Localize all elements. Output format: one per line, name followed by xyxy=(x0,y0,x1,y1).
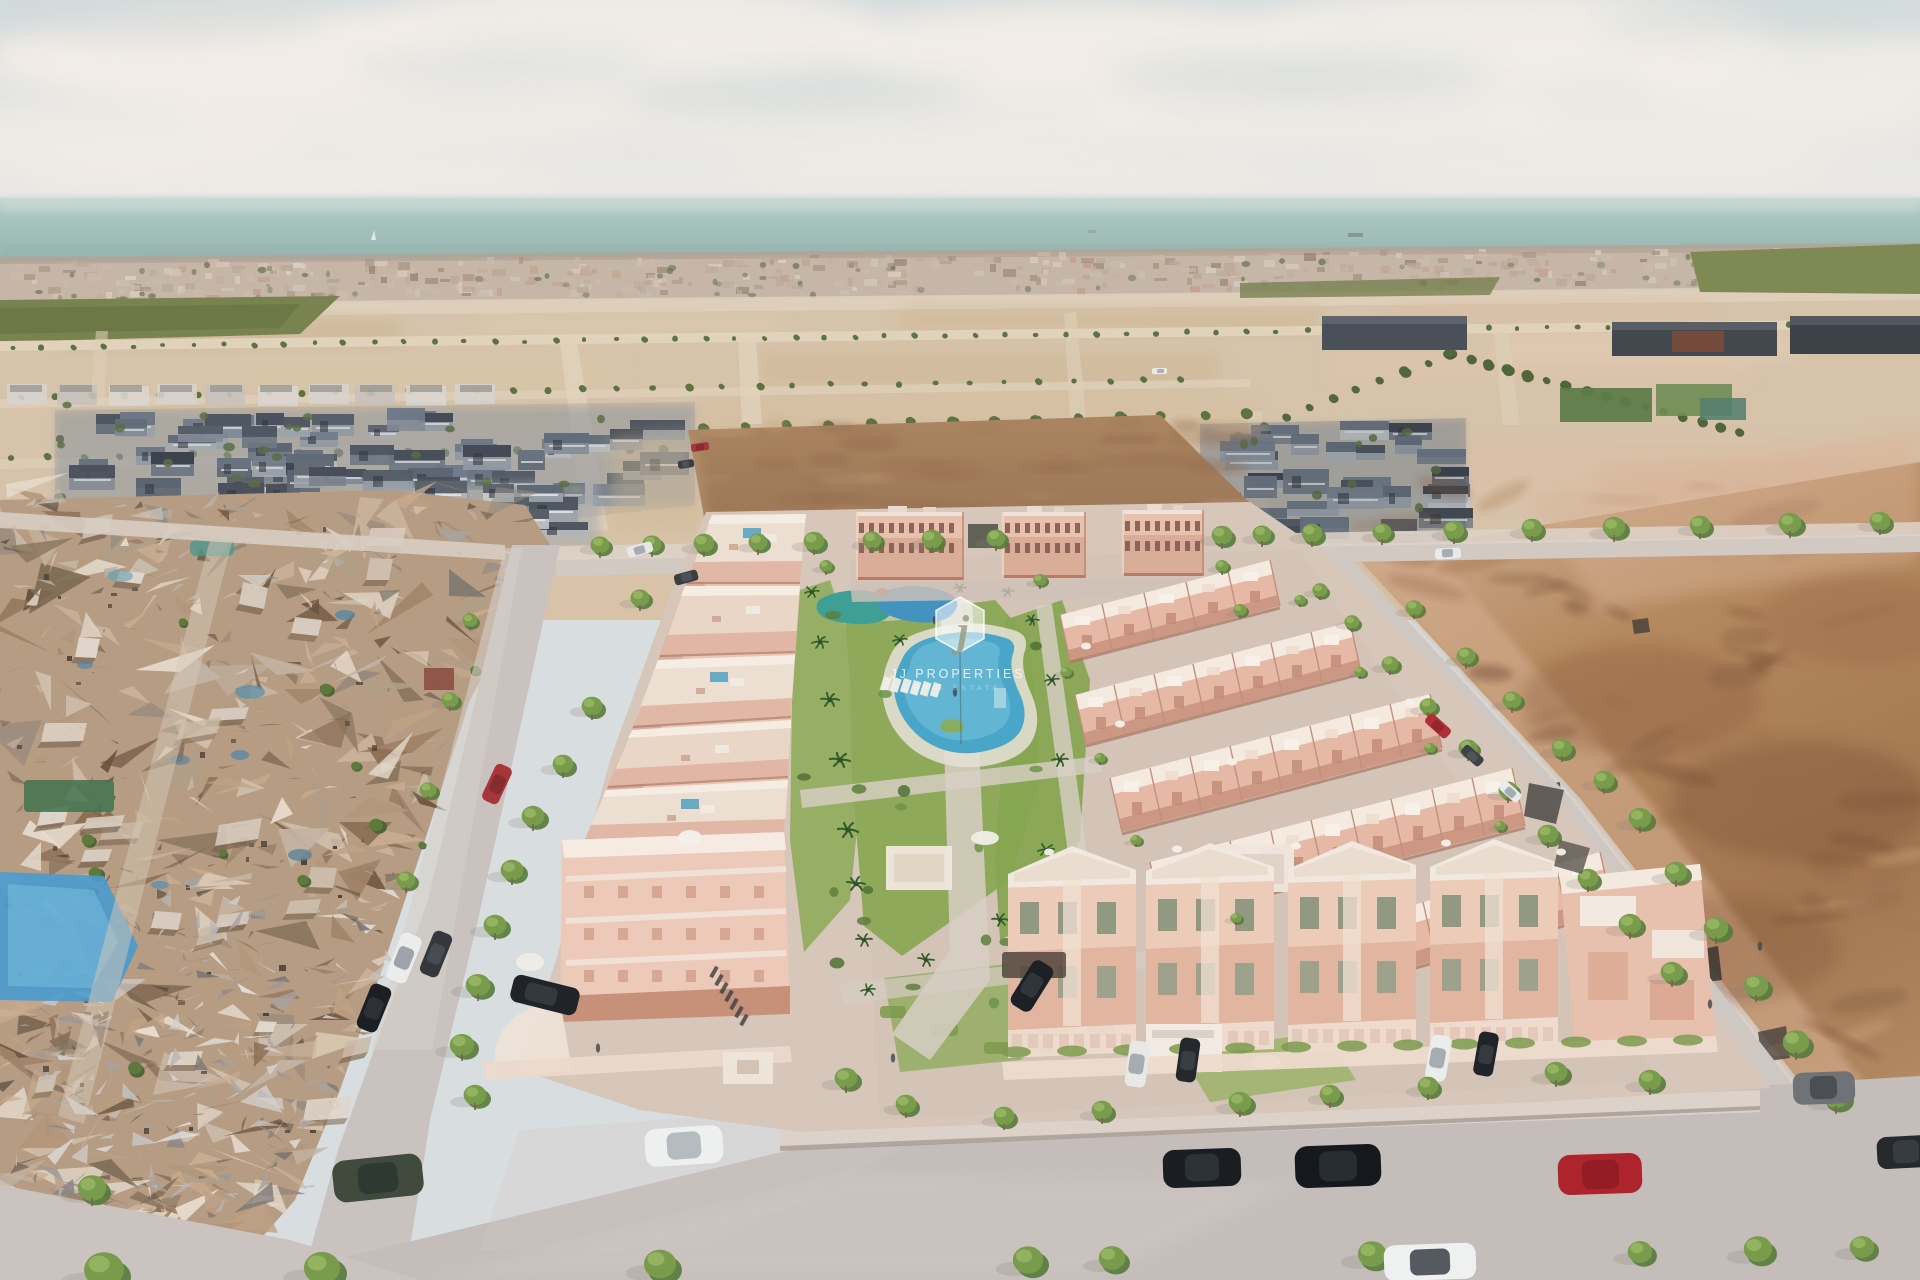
svg-text:REAL ESTATE: REAL ESTATE xyxy=(915,685,1002,692)
svg-text:JJ PROPERTIES: JJ PROPERTIES xyxy=(890,667,1025,681)
